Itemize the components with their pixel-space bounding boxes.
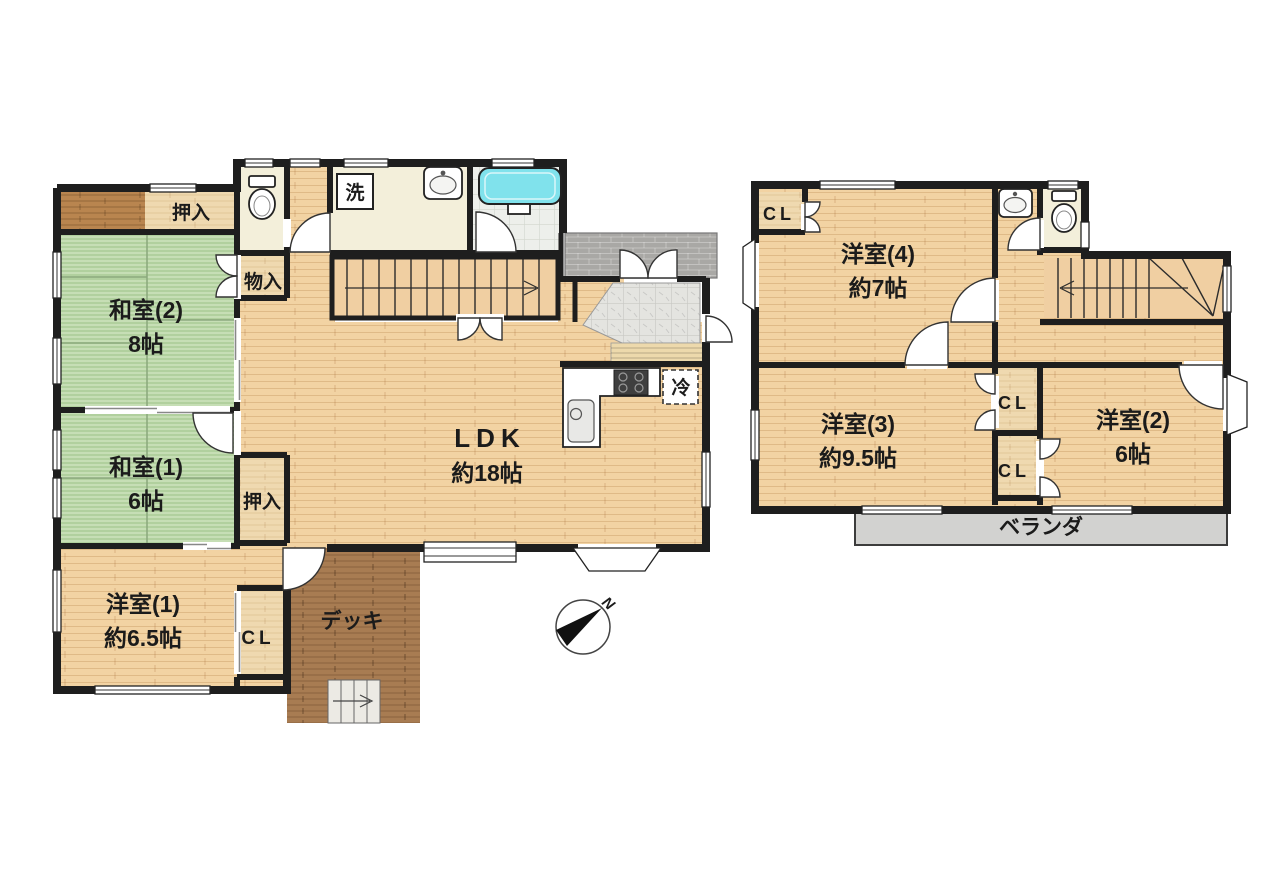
label-closet-mid-upper: CL [998,393,1030,413]
room-engawa-strip [57,188,145,232]
floorplan-drawing: 押入 和室(2) 8帖 物入 和室(1) 6帖 押入 洋室(1) 約6.5帖 C… [0,0,1280,873]
label-laundry: 洗 [345,181,364,204]
label-closet-1f: CL [241,628,274,649]
label-washitsu2: 和室(2) [109,297,183,323]
kitchen-sink-icon [568,400,594,442]
label-veranda: ベランダ [999,515,1083,539]
label-closet-mid-lower: CL [998,461,1030,481]
label-washitsu1-size: 6帖 [128,488,164,514]
label-closet-2f-top: CL [763,204,795,224]
label-youshitsu1: 洋室(1) [106,591,180,617]
bay-window-left [743,239,755,311]
deck-steps [328,680,380,723]
room-youshitsu1 [57,546,237,690]
label-oshiire-mid: 押入 [243,490,281,513]
label-youshitsu4: 洋室(4) [841,241,915,267]
label-monoire: 物入 [244,270,282,293]
washroom-sink-icon [424,167,462,199]
label-ldk-size: 約18帖 [451,460,523,486]
label-youshitsu4-size: 約7帖 [849,275,908,301]
floorplan-canvas: 押入 和室(2) 8帖 物入 和室(1) 6帖 押入 洋室(1) 約6.5帖 C… [0,0,1280,873]
toilet-2f-icon [1052,191,1076,232]
bay-window-right [1227,374,1247,435]
hall-sink-icon [999,189,1032,217]
side-door [706,316,732,342]
label-washitsu2-size: 8帖 [128,331,164,357]
stove-icon [614,370,648,395]
corridor-west [237,298,287,458]
label-fridge: 冷 [671,376,690,399]
label-youshitsu2-size: 6帖 [1115,441,1151,467]
floor2-plan: CL 洋室(4) 約7帖 洋室(3) 約9.5帖 洋室(2) 6帖 CL CL … [743,181,1247,545]
compass: N [556,594,619,654]
label-youshitsu2: 洋室(2) [1096,407,1170,433]
toilet-icon [249,176,275,219]
label-youshitsu3: 洋室(3) [821,411,895,437]
label-ldk: LDK [454,423,525,453]
label-oshiire-top: 押入 [172,201,210,224]
label-youshitsu1-size: 約6.5帖 [104,625,182,651]
label-deck: デッキ [321,609,384,633]
label-youshitsu3-size: 約9.5帖 [819,445,897,471]
floor1-plan: 押入 和室(2) 8帖 物入 和室(1) 6帖 押入 洋室(1) 約6.5帖 C… [53,159,732,723]
label-washitsu1: 和室(1) [109,454,183,480]
